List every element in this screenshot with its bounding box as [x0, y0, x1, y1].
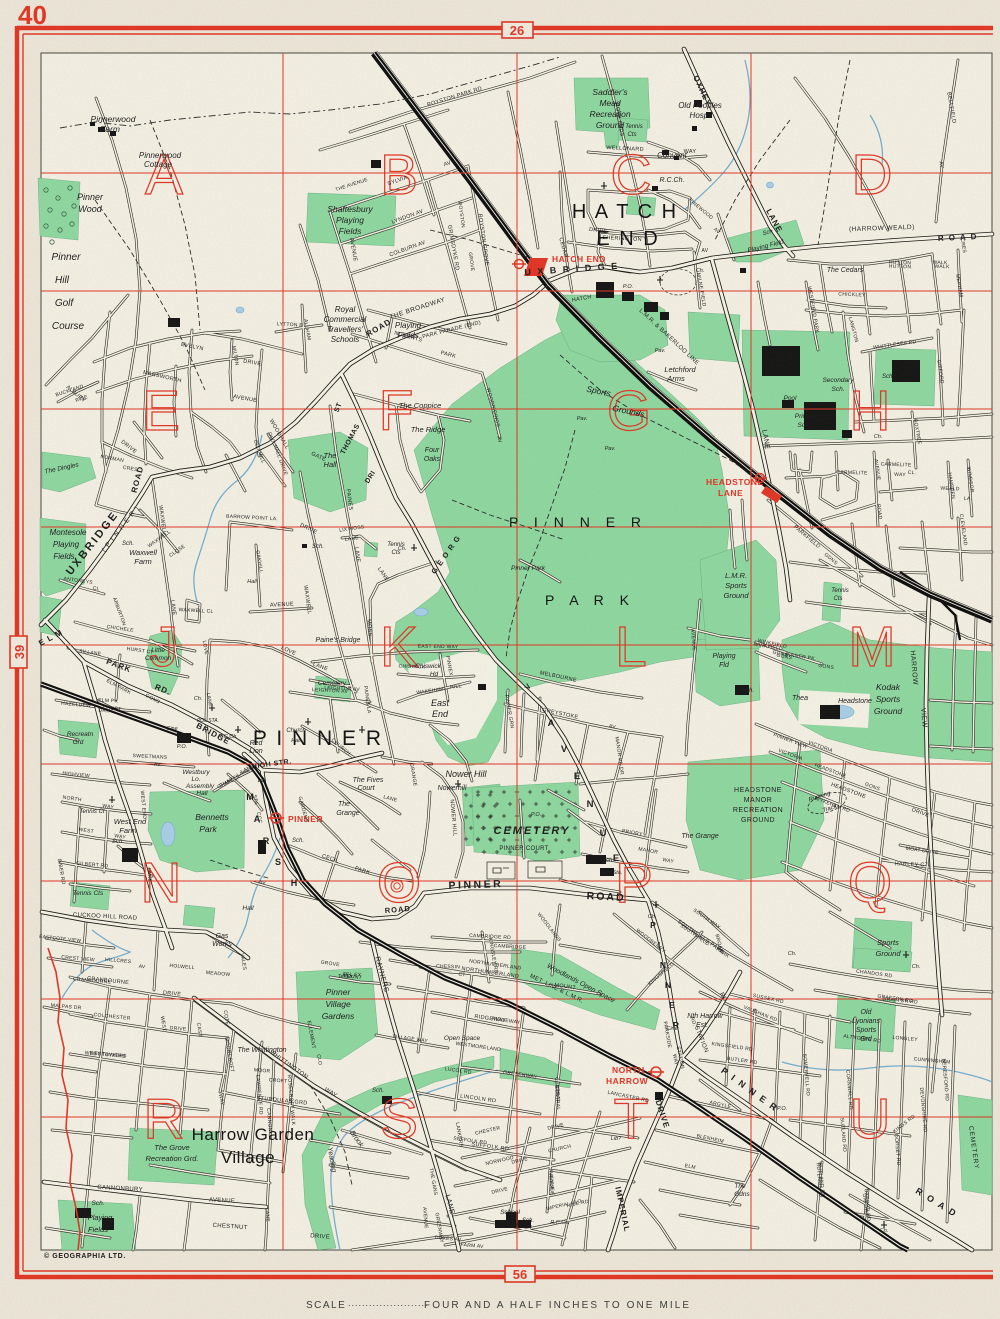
- svg-text:© GEOGRAPHIA LTD.: © GEOGRAPHIA LTD.: [44, 1252, 126, 1260]
